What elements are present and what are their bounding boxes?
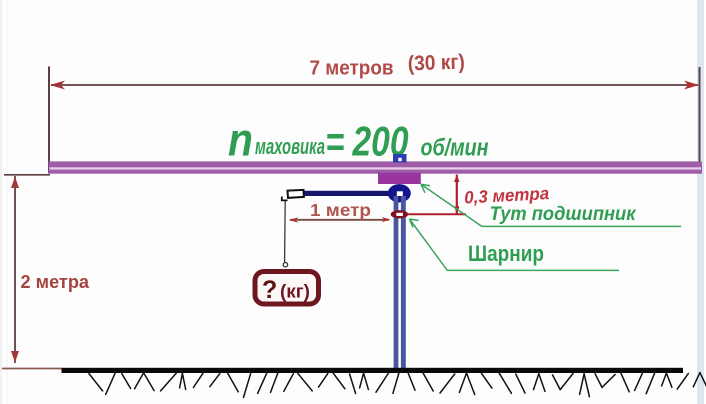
svg-text:1 метр: 1 метр bbox=[310, 200, 371, 220]
svg-text:Тут подшипник: Тут подшипник bbox=[490, 204, 637, 225]
svg-text:об/мин: об/мин bbox=[421, 135, 489, 162]
svg-text:2 метра: 2 метра bbox=[21, 272, 90, 292]
svg-text:маховика: маховика bbox=[255, 134, 325, 159]
svg-text:Шарнир: Шарнир bbox=[468, 241, 544, 266]
svg-text:n: n bbox=[228, 114, 253, 166]
svg-text:7 метров: 7 метров bbox=[310, 58, 394, 80]
svg-text:?: ? bbox=[262, 276, 277, 304]
svg-text:(30 кг): (30 кг) bbox=[407, 51, 465, 76]
svg-text:=: = bbox=[326, 118, 345, 165]
svg-text:(кг): (кг) bbox=[280, 282, 310, 302]
